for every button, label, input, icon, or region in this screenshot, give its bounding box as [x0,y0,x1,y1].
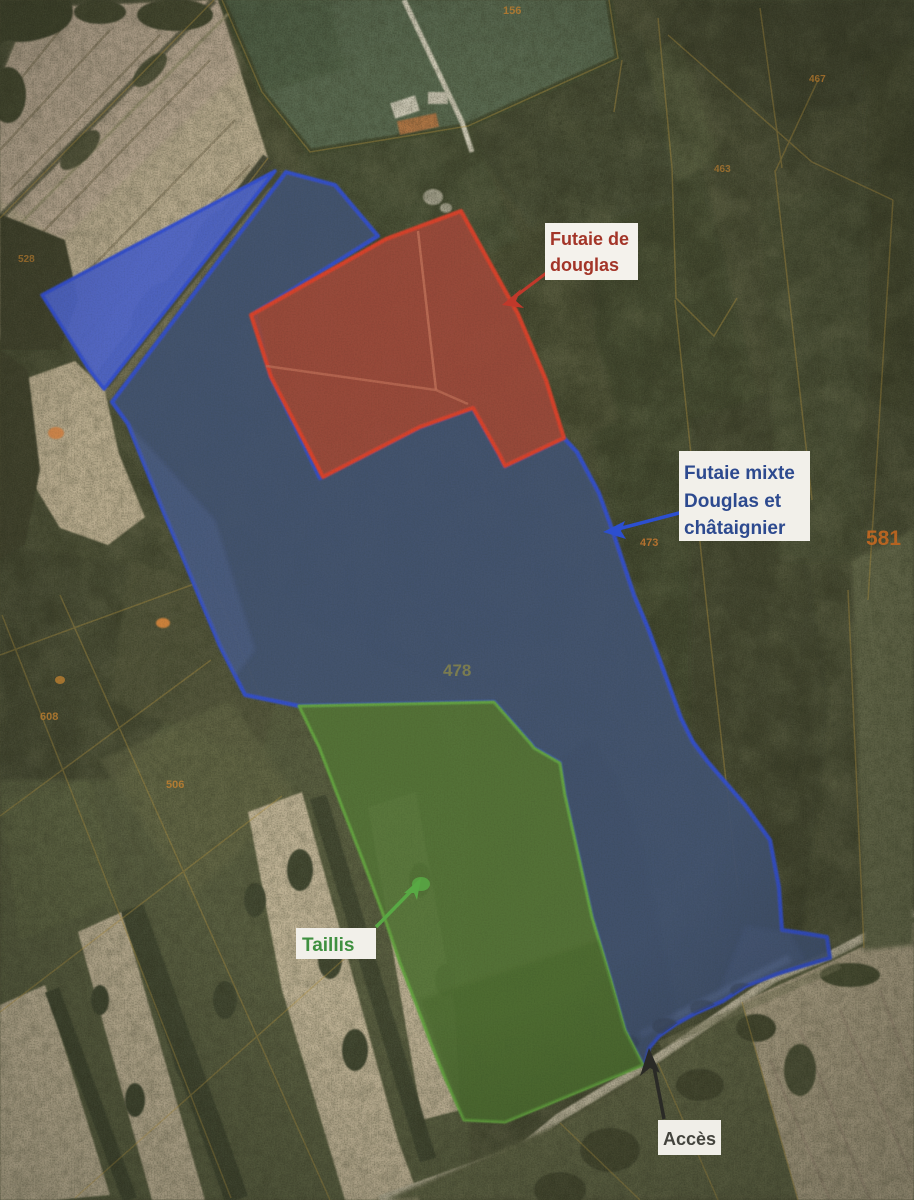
svg-text:châtaignier: châtaignier [684,518,786,539]
svg-text:Accès: Accès [663,1129,716,1149]
svg-text:douglas: douglas [550,255,619,275]
svg-text:Douglas et: Douglas et [684,491,782,512]
svg-text:Futaie de: Futaie de [550,229,629,249]
svg-text:Taillis: Taillis [302,935,354,956]
svg-text:Futaie mixte: Futaie mixte [684,463,795,484]
